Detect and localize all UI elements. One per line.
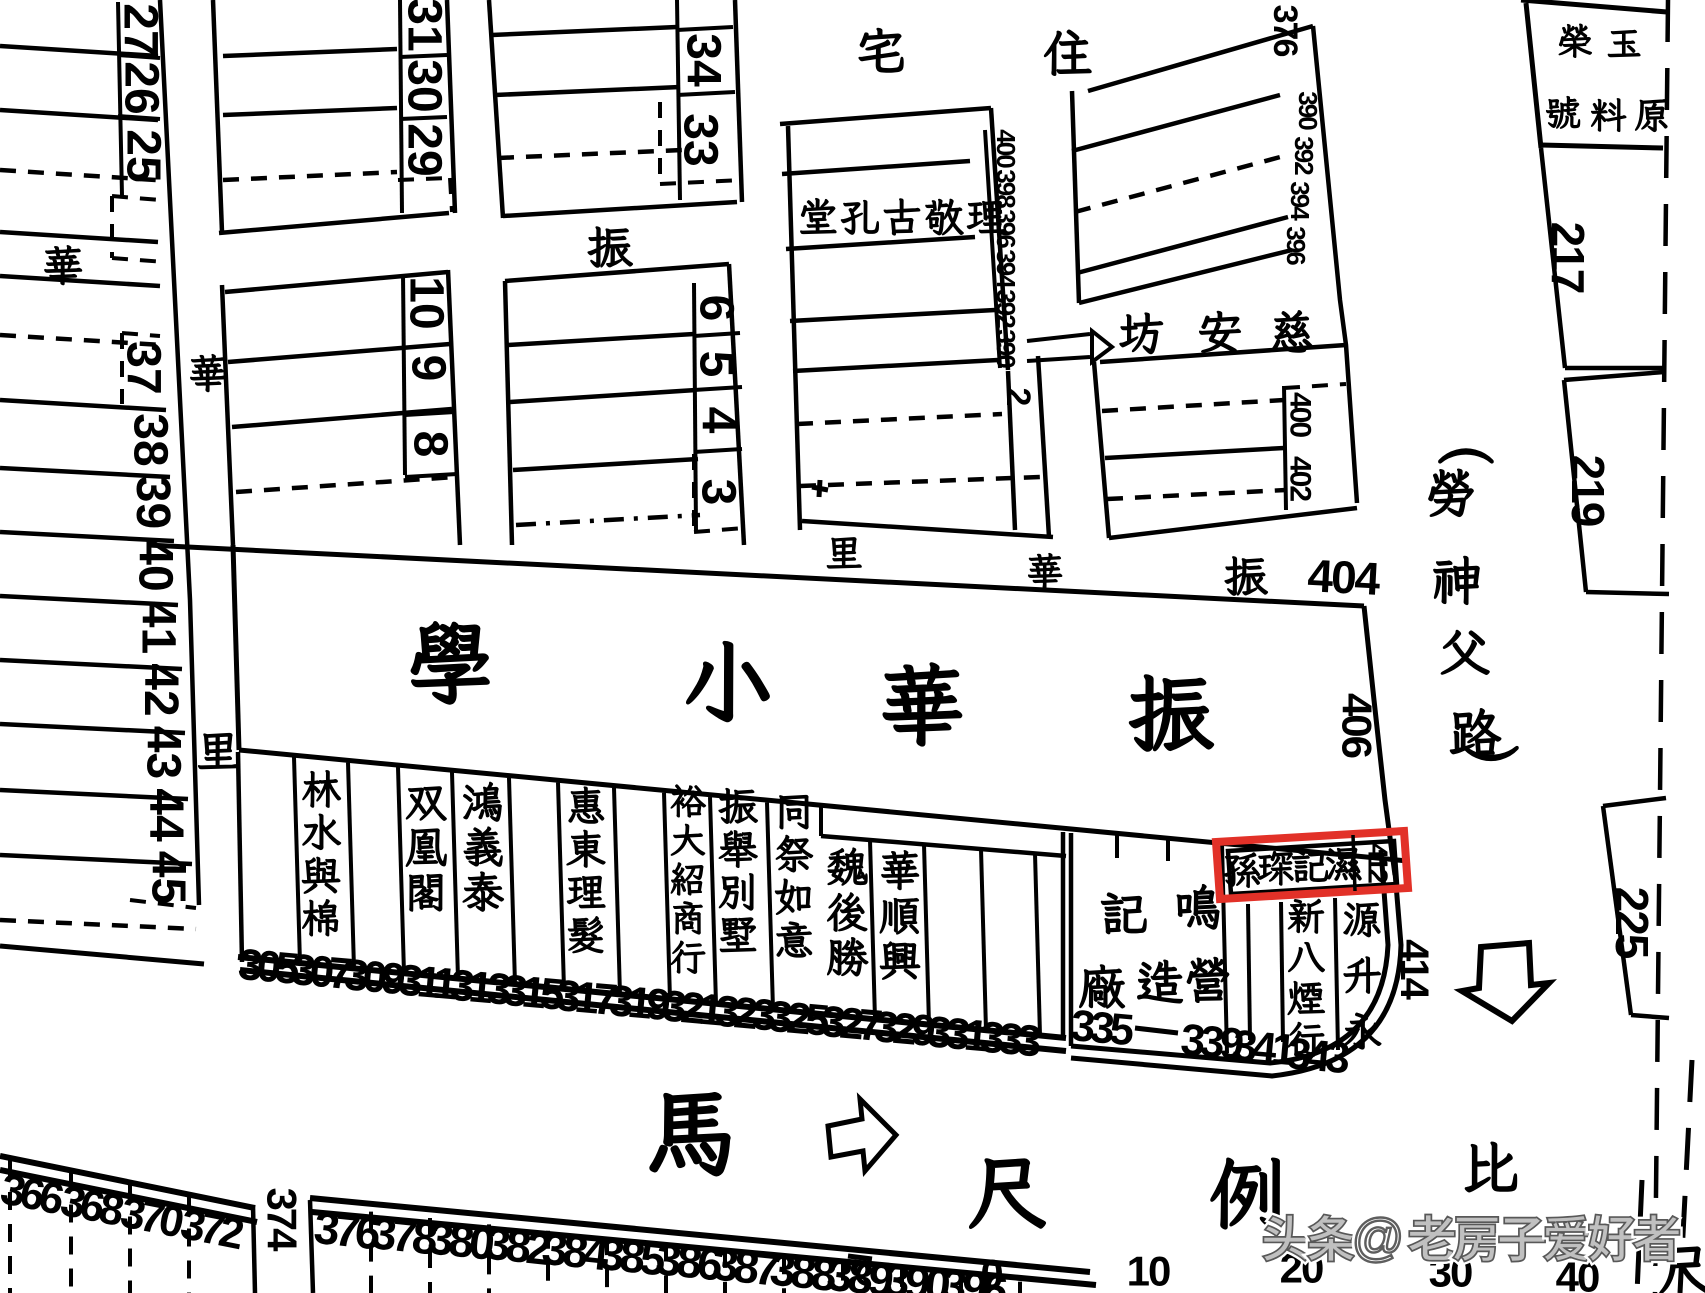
svg-text:44: 44 <box>139 788 192 842</box>
svg-text:29: 29 <box>398 123 451 176</box>
svg-text:374: 374 <box>259 1187 306 1252</box>
svg-text:400: 400 <box>991 129 1021 168</box>
svg-text:217: 217 <box>1542 222 1594 293</box>
svg-text:412: 412 <box>1363 843 1394 883</box>
svg-text:396: 396 <box>939 1258 1009 1293</box>
svg-text:31: 31 <box>398 0 451 52</box>
svg-text:@: @ <box>1352 1209 1405 1267</box>
svg-text:400: 400 <box>1284 392 1317 437</box>
svg-text:10: 10 <box>1127 1248 1170 1293</box>
svg-text:26: 26 <box>115 61 168 114</box>
svg-text:219: 219 <box>1562 455 1614 526</box>
svg-text:2: 2 <box>999 388 1037 407</box>
svg-text:390: 390 <box>1293 91 1323 130</box>
svg-text:41: 41 <box>131 601 184 654</box>
svg-text:6: 6 <box>690 295 743 322</box>
svg-text:30: 30 <box>398 59 451 112</box>
svg-text:33: 33 <box>674 113 727 166</box>
svg-text:38: 38 <box>124 413 177 466</box>
svg-text:27: 27 <box>114 3 167 56</box>
svg-text:376: 376 <box>1266 5 1304 57</box>
svg-text:10: 10 <box>400 276 453 329</box>
svg-text:43: 43 <box>137 726 190 779</box>
svg-text:333: 333 <box>978 1012 1042 1066</box>
svg-text:34: 34 <box>677 33 730 87</box>
svg-text:396: 396 <box>1281 226 1311 265</box>
svg-text:42: 42 <box>134 663 187 716</box>
svg-text:37: 37 <box>117 341 170 394</box>
svg-text:225: 225 <box>1606 887 1658 959</box>
svg-text:390: 390 <box>991 329 1021 368</box>
svg-text:45: 45 <box>142 851 195 904</box>
svg-text:5: 5 <box>690 351 743 378</box>
svg-text:402: 402 <box>1284 456 1317 501</box>
svg-text:9: 9 <box>402 355 455 382</box>
svg-text:4: 4 <box>692 407 745 434</box>
svg-text:3: 3 <box>692 479 745 506</box>
svg-text:39: 39 <box>126 476 179 529</box>
svg-text:394: 394 <box>991 249 1021 289</box>
svg-text:396: 396 <box>991 209 1021 248</box>
svg-text:414: 414 <box>1392 939 1436 1000</box>
svg-text:25: 25 <box>117 129 170 182</box>
svg-text:406: 406 <box>1334 693 1381 758</box>
svg-text:392: 392 <box>991 289 1021 328</box>
svg-text:404: 404 <box>1306 549 1382 605</box>
svg-text:398: 398 <box>991 169 1021 208</box>
svg-text:392: 392 <box>1289 136 1319 175</box>
svg-text:394: 394 <box>1285 181 1315 221</box>
svg-text:8: 8 <box>404 431 457 458</box>
